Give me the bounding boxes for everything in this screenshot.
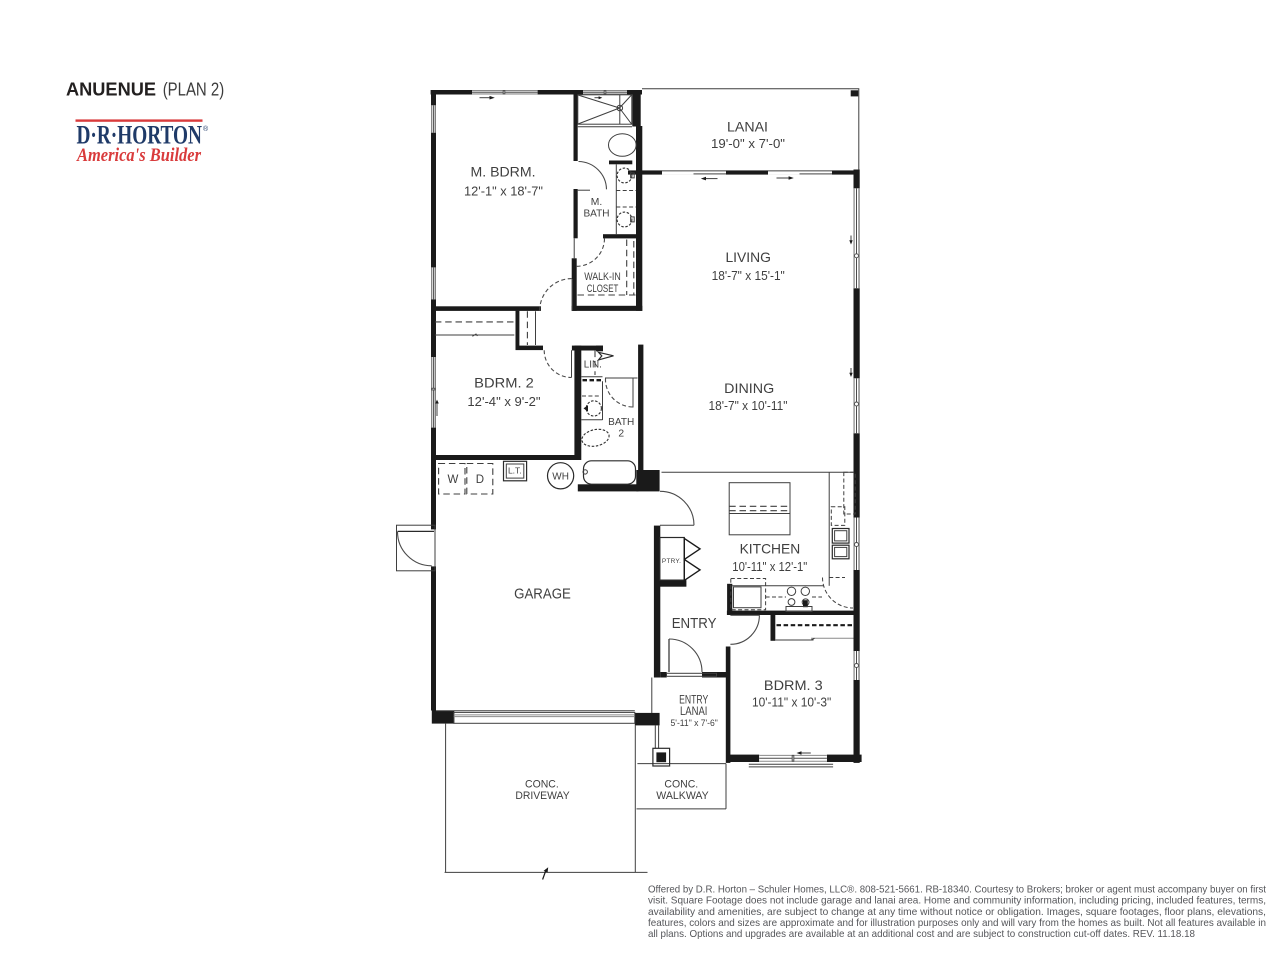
svg-text:LIVING: LIVING: [725, 249, 771, 265]
svg-text:CONC.: CONC.: [525, 779, 559, 791]
svg-text:GARAGE: GARAGE: [514, 587, 571, 603]
svg-text:KITCHEN: KITCHEN: [740, 540, 801, 556]
svg-text:M. BDRM.: M. BDRM.: [471, 164, 536, 180]
svg-text:L.T.: L.T.: [508, 466, 522, 476]
svg-text:LANAI: LANAI: [727, 119, 768, 135]
svg-text:WALKWAY: WALKWAY: [656, 790, 709, 802]
svg-text:CONC.: CONC.: [664, 779, 698, 791]
svg-text:DINING: DINING: [724, 380, 774, 396]
svg-text:PTRY.: PTRY.: [662, 558, 681, 565]
svg-text:CLOSET: CLOSET: [587, 283, 619, 295]
svg-text:BATH: BATH: [608, 417, 634, 428]
svg-text:W: W: [447, 474, 458, 486]
svg-text:BATH: BATH: [583, 209, 609, 220]
svg-text:LANAI: LANAI: [680, 706, 708, 718]
svg-text:BDRM. 3: BDRM. 3: [764, 677, 823, 693]
svg-text:BDRM. 2: BDRM. 2: [474, 375, 534, 391]
svg-text:10'-11" x 10'-3": 10'-11" x 10'-3": [752, 696, 831, 710]
svg-text:DRIVEWAY: DRIVEWAY: [515, 790, 570, 802]
svg-text:WH: WH: [552, 471, 569, 482]
svg-text:10'-11" x 12'-1": 10'-11" x 12'-1": [732, 560, 807, 574]
svg-text:5'-11" x 7'-6": 5'-11" x 7'-6": [671, 718, 718, 728]
svg-text:18'-7" x 10'-11": 18'-7" x 10'-11": [709, 399, 788, 413]
svg-text:2: 2: [618, 428, 624, 439]
svg-text:M.: M.: [591, 197, 602, 208]
svg-text:LIN.: LIN.: [584, 360, 602, 371]
svg-text:12'-1" x 18'-7": 12'-1" x 18'-7": [464, 185, 543, 199]
svg-text:18'-7" x 15'-1": 18'-7" x 15'-1": [712, 269, 785, 283]
svg-text:19'-0" x 7'-0": 19'-0" x 7'-0": [711, 137, 785, 151]
svg-text:12'-4" x 9'-2": 12'-4" x 9'-2": [467, 395, 540, 409]
svg-text:ENTRY: ENTRY: [672, 615, 717, 632]
svg-text:WALK-IN: WALK-IN: [584, 271, 621, 283]
svg-text:D: D: [476, 474, 484, 486]
svg-text:ENTRY: ENTRY: [679, 695, 708, 707]
